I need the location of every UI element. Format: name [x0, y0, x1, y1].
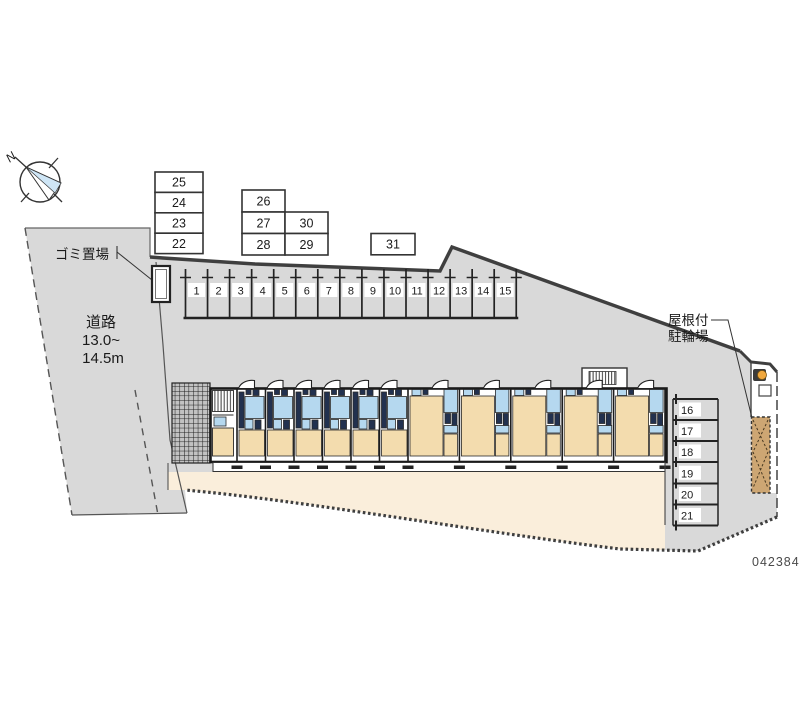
balcony-dash: [608, 466, 619, 470]
unit-room: [245, 420, 253, 430]
unit-room: [369, 420, 375, 429]
road-label-line1: 道路: [86, 314, 116, 331]
unit-room: [577, 390, 582, 395]
unit-room: [388, 420, 396, 430]
unit-room: [566, 390, 575, 396]
balcony-dash: [289, 466, 300, 470]
parking-box-number: 25: [172, 176, 186, 190]
unit-room: [474, 390, 479, 395]
compass-north-label: N: [3, 149, 19, 166]
unit-room: [245, 397, 264, 419]
unit-room: [515, 390, 524, 396]
unit-room: [302, 420, 310, 430]
bike-shed: [752, 417, 771, 493]
unit-room: [325, 430, 351, 456]
unit-room: [629, 390, 634, 395]
bike-label-line1: 屋根付: [668, 313, 709, 328]
unit-room: [495, 426, 509, 434]
stall-number: 19: [681, 468, 693, 480]
stall-number: 21: [681, 511, 693, 523]
unit-room: [332, 390, 337, 395]
unit-room: [246, 390, 251, 395]
unit-room: [382, 392, 387, 428]
parking-box-number: 26: [257, 195, 271, 209]
unit-room: [325, 392, 330, 428]
stall-number: 5: [282, 286, 288, 298]
unit-room: [274, 397, 293, 419]
unit-room: [296, 392, 301, 428]
stall-number: 4: [260, 286, 266, 298]
unit-room: [650, 426, 664, 434]
unit-room: [598, 390, 612, 413]
stall-number: 17: [681, 426, 693, 438]
garbage-station-box: [152, 266, 170, 302]
unit-room: [353, 430, 379, 456]
site-plan-drawing: N 道路 13.0~ 14.5m ゴミ置場 屋根付 駐輪場: [0, 0, 800, 727]
balcony-dash: [505, 466, 516, 470]
stall-number: 11: [411, 286, 422, 298]
stall-number: 18: [681, 447, 693, 459]
parking-box-number: 24: [172, 196, 186, 210]
parking-box-number: 27: [257, 216, 271, 230]
site-plan-page: N 道路 13.0~ 14.5m ゴミ置場 屋根付 駐輪場: [0, 0, 800, 727]
stall-number: 9: [370, 286, 376, 298]
unit-room: [339, 390, 345, 396]
unit-room: [444, 390, 458, 413]
parking-boxes-22-31: 25242322262728302931: [155, 172, 415, 255]
unit-room: [444, 434, 458, 456]
unit-room: [282, 390, 288, 396]
stall-number: 10: [389, 286, 401, 298]
garbage-label: ゴミ置場: [55, 246, 109, 262]
unit-room: [410, 396, 443, 456]
unit-room: [412, 390, 421, 396]
parking-box-number: 30: [300, 216, 314, 230]
unit-room: [495, 434, 509, 456]
stall-number: 2: [216, 286, 222, 298]
unit-room: [359, 420, 367, 430]
unit-room: [564, 396, 597, 456]
unit-room: [650, 434, 664, 456]
unit-room: [239, 392, 244, 428]
unit-room: [312, 420, 318, 429]
unit-room: [461, 396, 494, 456]
lamp-icon: [758, 371, 767, 380]
stall-number: 16: [681, 405, 693, 417]
unit-room: [650, 390, 664, 413]
balcony-dash: [260, 466, 271, 470]
balcony-dash: [232, 466, 243, 470]
unit-room: [444, 426, 458, 434]
unit-room: [598, 426, 612, 434]
plan-number: 042384: [752, 555, 800, 569]
unit-room: [268, 430, 294, 456]
unit-room: [239, 430, 265, 456]
unit-room: [651, 414, 657, 424]
unit-room: [275, 390, 280, 395]
unit-room: [302, 397, 321, 419]
unit-room: [547, 390, 561, 413]
compass-north-arrow: N: [3, 149, 62, 202]
balcony-strip: [213, 463, 665, 472]
balcony-dash: [317, 466, 328, 470]
unit-room: [296, 430, 322, 456]
stall-number: 1: [193, 286, 199, 298]
road-label-line3: 14.5m: [82, 350, 124, 367]
stall-number: 6: [304, 286, 310, 298]
unit-room: [616, 396, 649, 456]
unit-room: [284, 420, 290, 429]
unit-room: [495, 390, 509, 413]
compass-tick-se: [54, 194, 62, 202]
unit-room: [513, 396, 546, 456]
unit-room: [548, 414, 554, 424]
unit-room: [382, 430, 408, 456]
stall-number: 14: [477, 286, 489, 298]
exterior-stair-hatch-block: [172, 383, 210, 463]
unit-room: [389, 390, 394, 395]
unit-room: [398, 420, 404, 429]
stall-number: 3: [238, 286, 244, 298]
unit-room: [331, 397, 350, 419]
balcony-dash: [346, 466, 357, 470]
unit-room: [496, 414, 502, 424]
stall-number: 12: [433, 286, 445, 298]
unit-room: [463, 390, 472, 396]
stall-number: 13: [455, 286, 467, 298]
unit-room: [599, 414, 605, 424]
courtyard-beige: [168, 472, 665, 550]
balcony-dash: [374, 466, 385, 470]
unit-room: [341, 420, 347, 429]
stall-number: 7: [326, 286, 332, 298]
unit-room: [310, 390, 316, 396]
unit-room: [396, 390, 402, 396]
road-label-line2: 13.0~: [82, 332, 120, 349]
unit-room: [268, 392, 273, 428]
unit-room: [367, 390, 373, 396]
stall-number: 8: [348, 286, 354, 298]
bike-label-line2: 駐輪場: [668, 328, 709, 344]
unit-room: [331, 420, 339, 430]
unit-room: [388, 397, 407, 419]
parking-box-number: 28: [257, 238, 271, 252]
parking-box-number: 31: [386, 238, 400, 252]
unit-room: [547, 426, 561, 434]
unit-room: [526, 390, 531, 395]
balcony-dash: [454, 466, 465, 470]
balcony-dash: [403, 466, 414, 470]
unit-room: [423, 390, 428, 395]
unit-room: [255, 420, 261, 429]
unit-room: [274, 420, 282, 430]
unit-room: [353, 392, 358, 428]
unit-room: [359, 397, 378, 419]
parking-box-number: 22: [172, 237, 186, 251]
utility-box: [759, 385, 771, 396]
parking-box-number: 29: [300, 238, 314, 252]
unit-room: [547, 434, 561, 456]
parking-box-number: 23: [172, 217, 186, 231]
unit-room: [618, 390, 627, 396]
unit-room: [360, 390, 365, 395]
stall-number: 20: [681, 490, 693, 502]
balcony-dash: [557, 466, 568, 470]
unit-room: [253, 390, 259, 396]
unit-room: [445, 414, 451, 424]
unit-room: [303, 390, 308, 395]
stall-number: 15: [499, 286, 511, 298]
unit-room: [598, 434, 612, 456]
